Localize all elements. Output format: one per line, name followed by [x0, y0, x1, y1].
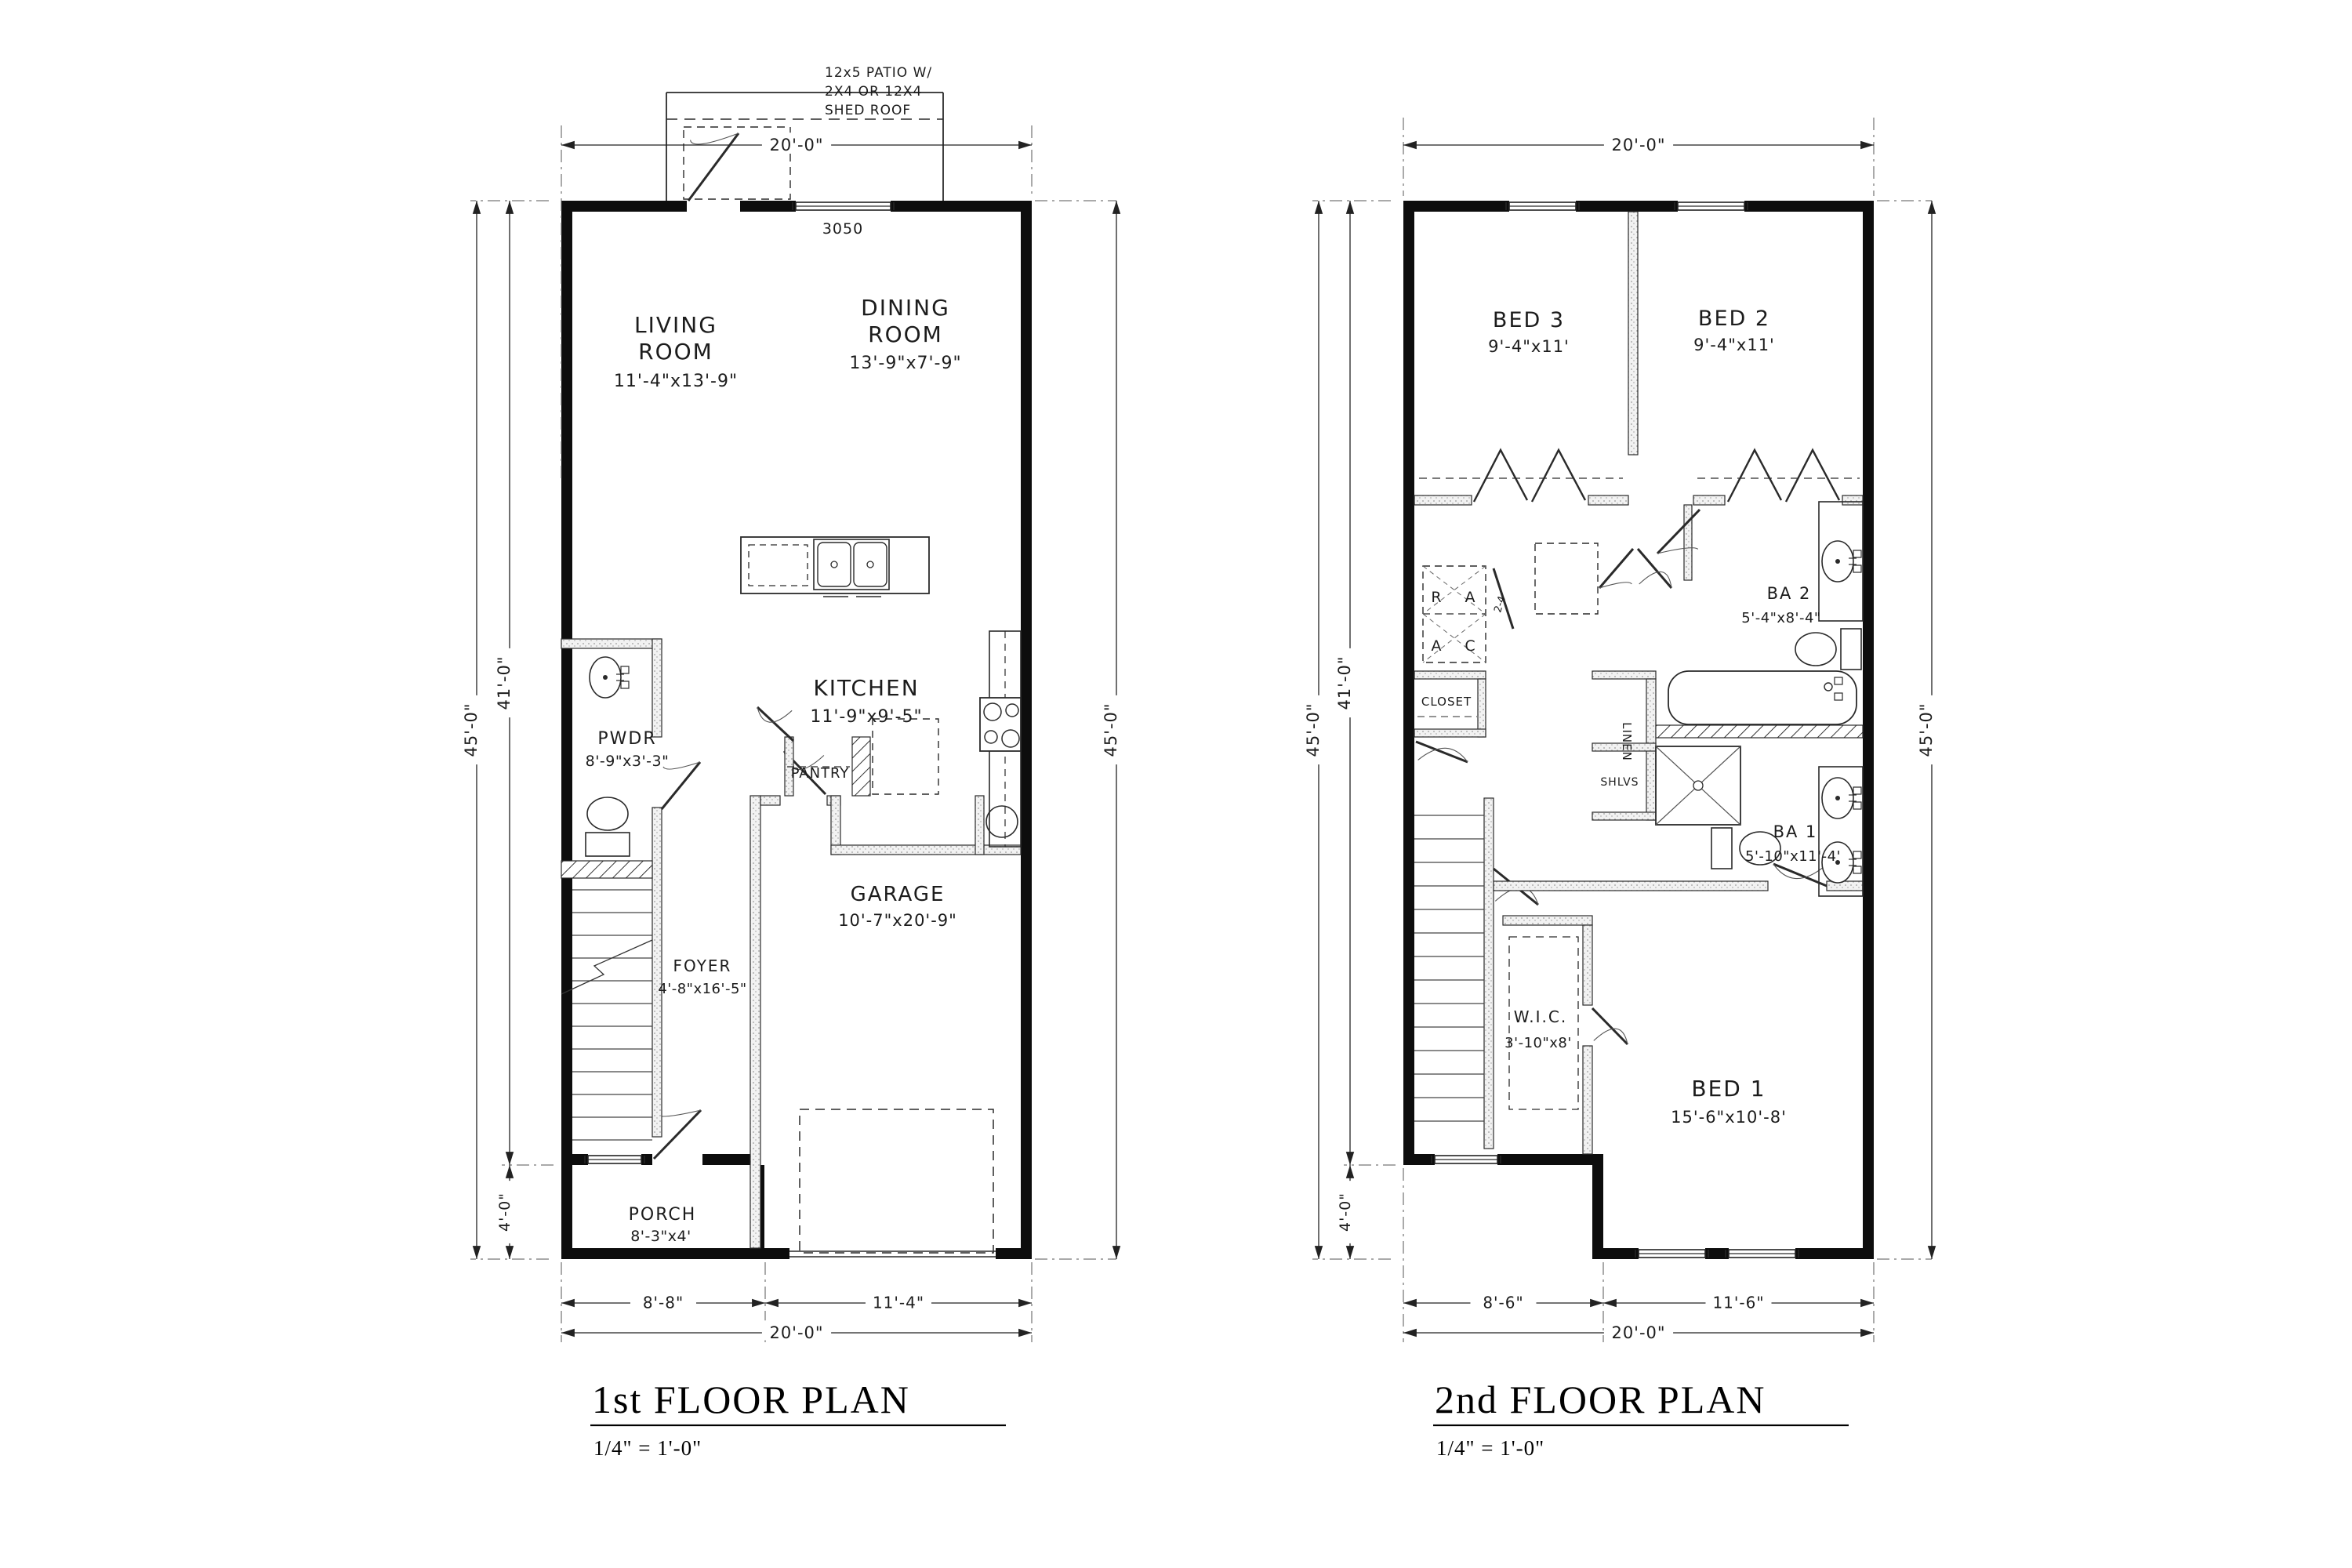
label: 8'-9"x3'-3": [586, 753, 670, 770]
label: 11'-4"x13'-9": [614, 372, 738, 391]
room-label-living: ROOM: [638, 339, 713, 365]
interior-wall-segment: [652, 808, 662, 1137]
label: 5'-10"x11'-4': [1745, 848, 1841, 865]
dim-label: 4'-0": [1337, 1192, 1354, 1232]
interior-wall-segment: [1484, 798, 1494, 1149]
interior-wall-segment: [1693, 495, 1725, 505]
window-symbol: [1432, 1156, 1501, 1163]
interior-wall-segment: [760, 796, 780, 805]
room-label-ba2: BA 2: [1767, 584, 1812, 603]
dim-label: 8'-6": [1483, 1294, 1523, 1312]
dim-label: 45'-0": [462, 702, 481, 757]
plan-scale: 1/4" = 1'-0": [1436, 1436, 1544, 1460]
floorplan-sheet: 12x5 PATIO W/2X4 OR 12X4SHED ROOF3050LIV…: [0, 0, 2352, 1568]
room-label-shlvs: SHLVS: [1600, 776, 1639, 789]
room-label-pwdr: PWDR: [597, 729, 656, 749]
window-symbol: [1726, 1250, 1798, 1258]
interior-wall-segment: [1583, 925, 1592, 1005]
exterior-wall-segment: [740, 201, 796, 212]
dim-label: 11'-6": [1712, 1294, 1764, 1312]
exterior-wall-segment: [891, 201, 1032, 212]
hatched-wall-segment: [852, 737, 870, 796]
dim-label: 11'-4": [873, 1294, 924, 1312]
exterior-wall-segment: [1497, 1154, 1603, 1165]
interior-wall-segment: [975, 796, 984, 855]
label: 10'-7"x20'-9": [838, 911, 957, 930]
exterior-wall-segment: [641, 1154, 652, 1165]
dim-label: 20'-0": [1611, 136, 1665, 154]
interior-wall-segment: [1684, 505, 1692, 580]
exterior-wall-segment: [1403, 1154, 1435, 1165]
interior-wall-segment: [1503, 916, 1592, 925]
dim-label: 45'-0": [1304, 702, 1323, 757]
dim-label: 8'-8": [643, 1294, 684, 1312]
label: 9'-4"x11': [1488, 337, 1570, 356]
room-label-porch: PORCH: [629, 1205, 697, 1225]
label: 11'-9"x9'-5": [810, 707, 922, 727]
stove-icon: [980, 698, 1021, 751]
exterior-wall-segment: [1576, 201, 1678, 212]
interior-wall-segment: [652, 639, 662, 737]
plan-title: 2nd FLOOR PLAN: [1435, 1377, 1766, 1421]
room-label-bed3: BED 3: [1493, 308, 1565, 332]
interior-wall-segment: [1628, 212, 1638, 455]
interior-wall-segment: [1842, 495, 1863, 505]
interior-wall-segment: [1592, 671, 1656, 679]
label: 15'-6"x10'-8': [1671, 1108, 1787, 1127]
dim-label: 20'-0": [1611, 1323, 1665, 1342]
dim-label: 41'-0": [495, 655, 514, 710]
interior-wall-segment: [1478, 679, 1486, 737]
label: 2X4 OR 12X4: [825, 84, 922, 100]
interior-wall-segment: [1592, 812, 1656, 820]
hatched-wall-segment: [561, 861, 652, 878]
exterior-wall-segment: [1592, 1248, 1639, 1259]
window-symbol: [1635, 1250, 1708, 1258]
room-label-kitchen: KITCHEN: [813, 675, 919, 701]
hvac-letter: R: [1431, 589, 1443, 606]
room-label-foyer: FOYER: [673, 956, 732, 975]
dim-label: 45'-0": [1917, 702, 1936, 757]
interior-wall-segment: [1414, 729, 1486, 737]
dim-label: 4'-0": [496, 1192, 514, 1232]
sheet-background: [0, 0, 2352, 1568]
dim-label: 45'-0": [1102, 702, 1120, 757]
room-label-linen: LINEN: [1620, 722, 1634, 761]
label: 12x5 PATIO W/: [825, 65, 932, 81]
exterior-wall-segment: [1795, 1248, 1874, 1259]
window-symbol: [1506, 202, 1579, 210]
hatched-wall-segment: [1656, 725, 1863, 738]
room-label-bed1: BED 1: [1691, 1076, 1766, 1102]
room-label-ba1: BA 1: [1773, 822, 1818, 841]
exterior-wall-segment: [561, 201, 687, 212]
interior-wall-segment: [1494, 881, 1768, 891]
plan-title: 1st FLOOR PLAN: [592, 1377, 910, 1421]
exterior-wall-segment: [1021, 201, 1032, 1259]
interior-wall-segment: [1414, 671, 1486, 679]
exterior-wall-segment: [996, 1248, 1032, 1259]
room-label-living: LIVING: [634, 312, 717, 338]
dim-label: 41'-0": [1335, 655, 1354, 710]
room-label-closet: CLOSET: [1421, 695, 1472, 709]
label: 5'-4"x8'-4": [1741, 610, 1820, 626]
room-label-pantry: PANTRY: [791, 765, 850, 782]
window-size-label: 3050: [822, 220, 863, 238]
hvac-letter: A: [1432, 637, 1443, 655]
window-symbol: [793, 202, 894, 210]
interior-wall-segment: [1583, 1046, 1592, 1154]
exterior-wall-segment: [1403, 201, 1509, 212]
exterior-wall-segment: [561, 201, 572, 1259]
interior-wall-segment: [561, 639, 662, 648]
interior-wall-segment: [1827, 881, 1863, 891]
dim-label: 20'-0": [769, 1323, 823, 1342]
label: 13'-9"x7'-9": [849, 354, 961, 373]
interior-wall-segment: [1414, 495, 1472, 505]
exterior-wall-segment: [764, 1248, 789, 1259]
exterior-wall-segment: [1744, 201, 1874, 212]
label: 8'-3"x4': [630, 1228, 691, 1245]
room-label-wic: W.I.C.: [1514, 1007, 1567, 1026]
exterior-wall-segment: [572, 1154, 588, 1165]
hvac-letter: A: [1465, 589, 1477, 606]
room-label-bed2: BED 2: [1698, 307, 1770, 331]
label: 4'-8"x16'-5": [658, 981, 746, 997]
hvac-letter: C: [1465, 637, 1476, 655]
exterior-wall-segment: [1403, 201, 1414, 1165]
label: SHED ROOF: [825, 103, 911, 118]
window-symbol: [1675, 202, 1748, 210]
exterior-wall-segment: [561, 1248, 764, 1259]
label: 9'-4"x11': [1693, 336, 1775, 354]
floorplan-drawing: 12x5 PATIO W/2X4 OR 12X4SHED ROOF3050LIV…: [0, 0, 2352, 1568]
exterior-wall-segment: [1863, 201, 1874, 1259]
room-label-garage: GARAGE: [851, 883, 946, 906]
label: 3'-10"x8': [1504, 1035, 1572, 1051]
window-symbol: [585, 1156, 644, 1163]
room-label-dining: ROOM: [868, 321, 943, 347]
dim-label: 20'-0": [769, 136, 823, 154]
room-label-dining: DINING: [861, 295, 950, 321]
interior-wall-segment: [750, 796, 760, 1248]
interior-wall-segment: [1588, 495, 1628, 505]
plan-scale: 1/4" = 1'-0": [593, 1436, 702, 1460]
exterior-wall-segment: [1592, 1154, 1603, 1259]
